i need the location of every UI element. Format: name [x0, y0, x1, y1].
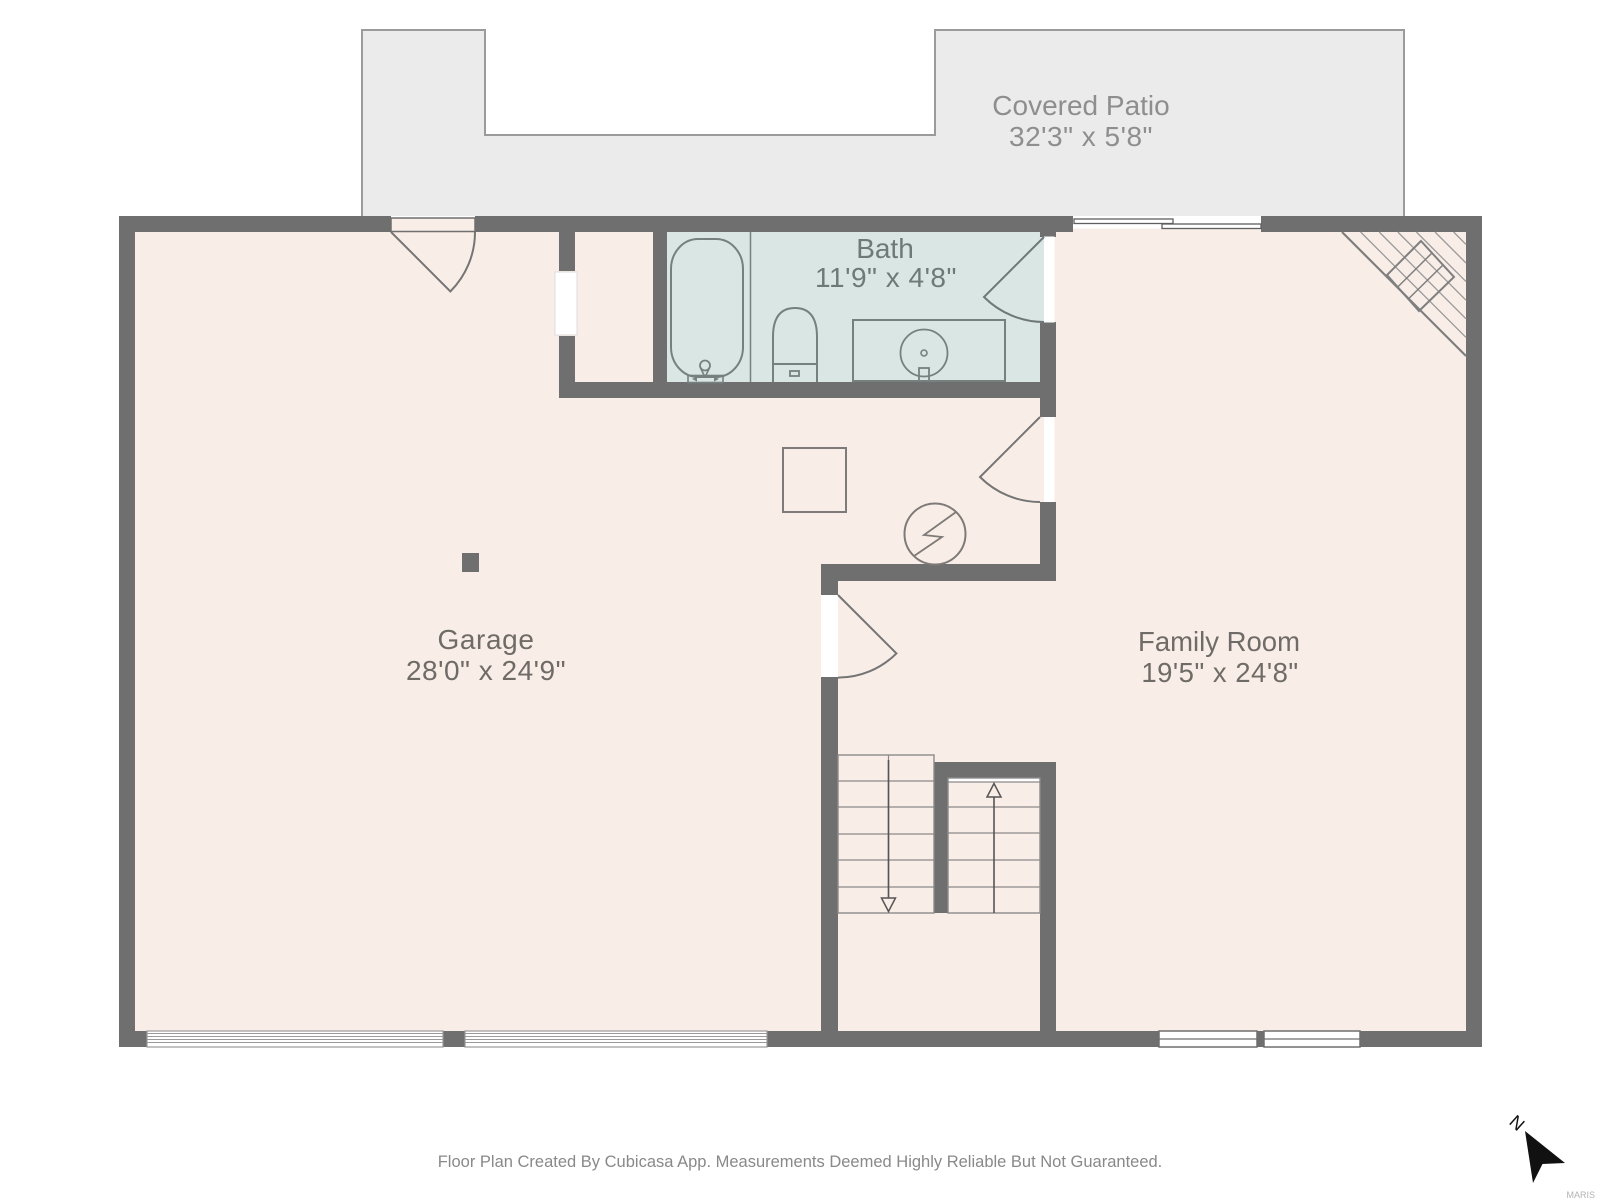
svg-text:11'9" x 4'8": 11'9" x 4'8"	[815, 262, 957, 293]
svg-text:32'3" x 5'8": 32'3" x 5'8"	[1009, 121, 1153, 152]
svg-text:19'5" x 24'8": 19'5" x 24'8"	[1141, 657, 1298, 688]
svg-text:Garage: Garage	[438, 624, 535, 655]
svg-text:Covered Patio: Covered Patio	[992, 90, 1169, 121]
svg-text:Floor Plan Created By Cubicasa: Floor Plan Created By Cubicasa App. Meas…	[438, 1153, 1163, 1171]
svg-text:Bath: Bath	[856, 233, 914, 264]
svg-text:Family Room: Family Room	[1138, 626, 1300, 657]
svg-text:28'0" x 24'9": 28'0" x 24'9"	[406, 655, 566, 686]
svg-text:MARIS: MARIS	[1566, 1190, 1595, 1200]
